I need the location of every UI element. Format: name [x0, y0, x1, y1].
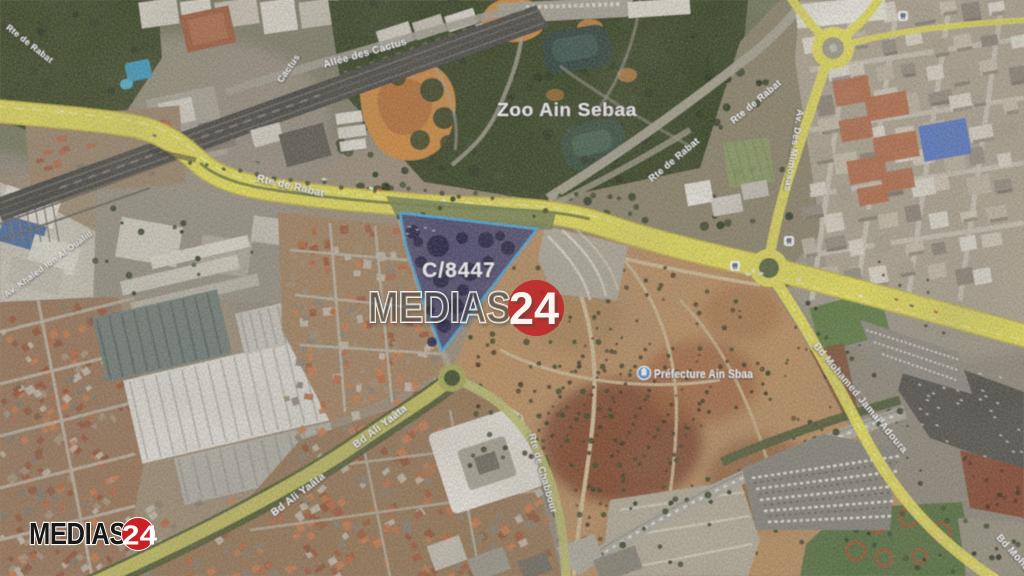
svg-text:24: 24: [509, 283, 559, 334]
svg-text:MEDIAS: MEDIAS: [368, 283, 511, 332]
svg-text:MEDIAS: MEDIAS: [29, 516, 126, 551]
svg-text:24: 24: [122, 520, 157, 551]
